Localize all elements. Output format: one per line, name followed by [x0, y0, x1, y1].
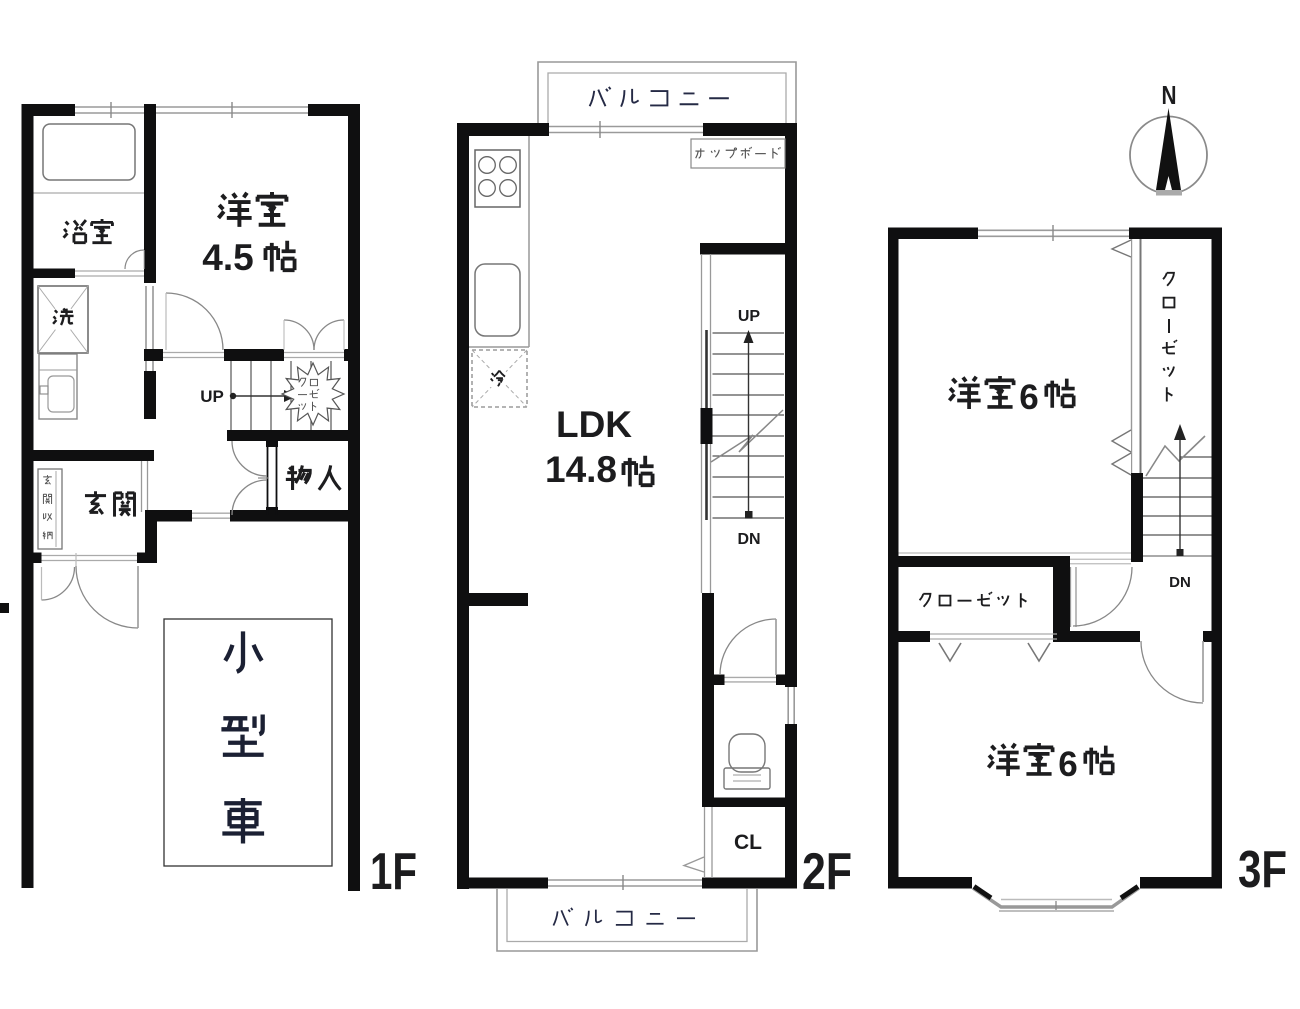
svg-text:2F: 2F [802, 843, 852, 901]
svg-text:14.8: 14.8 [545, 449, 617, 490]
svg-text:3F: 3F [1238, 841, 1287, 899]
svg-text:4.5: 4.5 [202, 237, 253, 278]
svg-text:CL: CL [734, 831, 762, 854]
svg-text:LDK: LDK [556, 404, 632, 445]
svg-text:UP: UP [200, 387, 224, 406]
svg-text:DN: DN [737, 531, 760, 548]
svg-text:UP: UP [738, 308, 761, 325]
svg-text:6: 6 [1058, 745, 1077, 784]
svg-text:DN: DN [1169, 574, 1191, 591]
svg-text:6: 6 [1019, 378, 1038, 417]
svg-text:N: N [1162, 80, 1177, 110]
svg-text:1F: 1F [370, 843, 417, 901]
